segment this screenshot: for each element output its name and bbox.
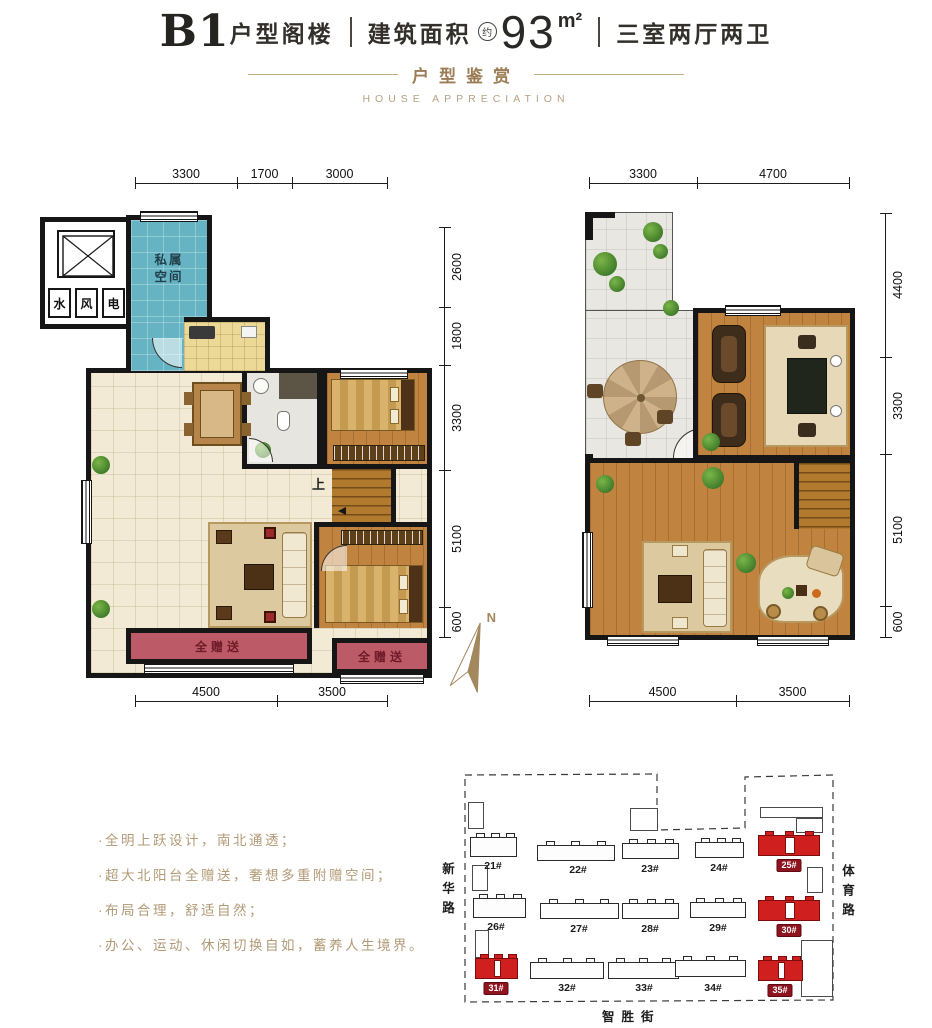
chair [830, 355, 842, 367]
aux-building [630, 808, 658, 831]
dim-value: 1800 [450, 322, 464, 350]
building-31 [475, 958, 518, 979]
balcony-gift-label: 全赠送 [195, 638, 243, 655]
plant [609, 276, 625, 292]
armchair [216, 606, 232, 620]
section-title-cn: 户型鉴赏 [412, 62, 520, 87]
sofa [282, 532, 307, 618]
building-32 [530, 962, 604, 979]
area-unit: m² [558, 10, 582, 33]
dim-value: 4700 [697, 167, 849, 181]
chair [672, 545, 688, 557]
road-bottom-label: 智胜街 [602, 1006, 661, 1025]
building-34-label: 34# [704, 982, 722, 994]
plant [782, 587, 794, 599]
side-table [264, 611, 276, 623]
plant [736, 553, 756, 573]
dim-ruler-right: 4400 3300 5100 600 [885, 213, 901, 637]
toilet [277, 411, 290, 431]
building-25-badge: 25# [776, 859, 801, 872]
private-space-label-line2: 空间 [131, 269, 207, 286]
dim-segment: 5100 [885, 454, 901, 606]
dim-ruler-top: 3300 1700 3000 [135, 166, 387, 184]
section-title: 户型鉴赏 HOUSE APPRECIATION [0, 62, 932, 105]
dim-segment: 3300 [135, 166, 237, 184]
dim-segment: 3500 [277, 684, 387, 702]
section-title-en: HOUSE APPRECIATION [0, 93, 932, 105]
selling-point: ·布局合理，舒适自然； [98, 900, 458, 935]
dim-value: 3500 [277, 685, 387, 699]
side-table [264, 527, 276, 539]
aux-building [801, 940, 833, 997]
page-title: B1 户型阁楼 建筑面积 约 93 m² 三室两厅两卫 [0, 6, 932, 57]
area-value: 93 [501, 9, 556, 55]
selling-point: ·超大北阳台全赠送，奢想多重附赠空间； [98, 865, 458, 900]
plant [653, 244, 668, 259]
building-21 [470, 837, 517, 857]
dim-segment: 1800 [444, 307, 460, 365]
balcony-gift-label: 全赠送 [358, 648, 406, 665]
bathroom-door-arc [249, 438, 273, 462]
wall-corner [585, 212, 615, 218]
title-divider [350, 17, 352, 47]
window [607, 635, 679, 646]
dim-ruler-right: 2600 1800 3300 5100 600 [444, 227, 460, 637]
window [81, 480, 92, 544]
compass: N [448, 610, 500, 698]
building-27-label: 27# [570, 923, 588, 935]
shaft-wind: 风 [75, 288, 98, 318]
patio-chair [587, 384, 603, 398]
plant [643, 222, 663, 242]
coffee-table [244, 564, 274, 590]
building-28-label: 28# [641, 923, 659, 935]
private-space-room: 私属 空间 [126, 215, 212, 317]
building-29-label: 29# [709, 922, 727, 934]
building-23-label: 23# [641, 863, 659, 875]
chair [184, 392, 193, 405]
dim-value: 1700 [237, 167, 292, 181]
window [144, 663, 294, 674]
kitchen [184, 317, 270, 371]
plant [702, 433, 720, 451]
dim-segment: 3000 [292, 166, 387, 184]
dim-segment: 4500 [135, 684, 277, 702]
dim-segment: 4700 [697, 166, 849, 184]
dim-value: 5100 [450, 525, 464, 553]
leisure-rug [758, 555, 844, 623]
dim-value: 3300 [135, 167, 237, 181]
chair [242, 392, 251, 405]
dim-segment: 3300 [589, 166, 697, 184]
bedroom-south [314, 522, 432, 628]
stairs-upper [794, 463, 850, 529]
chair [672, 617, 688, 629]
dim-segment: 3300 [444, 365, 460, 470]
table [787, 358, 827, 414]
wardrobe [333, 445, 425, 461]
plant [702, 467, 724, 489]
shaft-wind-label: 风 [80, 295, 92, 312]
window [340, 673, 424, 684]
dim-value: 4500 [589, 685, 736, 699]
dim-ruler-bottom: 4500 3500 [135, 684, 387, 702]
building-35 [758, 960, 803, 981]
dim-value: 600 [891, 611, 905, 632]
balcony-gift-right: 全赠送 [332, 638, 432, 674]
dim-value: 3300 [891, 392, 905, 420]
building-26 [473, 898, 526, 918]
pillow [399, 599, 408, 614]
umbrella-pole [637, 394, 645, 402]
armchair [216, 530, 232, 544]
shaft-power: 电 [102, 288, 125, 318]
dim-value: 4500 [135, 685, 277, 699]
side-table [796, 585, 807, 596]
plant [593, 252, 617, 276]
building-32-label: 32# [558, 982, 576, 994]
building-29 [690, 902, 746, 918]
wardrobe [341, 530, 423, 545]
gym-room [693, 308, 855, 460]
aux-building [760, 807, 823, 818]
selling-point: ·全明上跃设计，南北通透； [98, 830, 458, 865]
private-space-label-line1: 私属 [131, 252, 207, 269]
unit-name: 户型阁楼 [230, 15, 334, 49]
building-23 [622, 843, 679, 859]
pillow [390, 387, 399, 402]
floorplan-poster: B1 户型阁楼 建筑面积 约 93 m² 三室两厅两卫 户型鉴赏 HOUSE A… [0, 0, 932, 1028]
window [725, 305, 781, 316]
decor-line [534, 74, 684, 75]
private-space-label: 私属 空间 [131, 252, 207, 286]
chair [798, 423, 816, 437]
sofa [703, 549, 727, 627]
table-rug [764, 325, 848, 447]
building-22 [537, 845, 615, 861]
dim-value: 3300 [450, 404, 464, 432]
dim-segment: 5100 [444, 470, 460, 607]
family-room [585, 458, 855, 640]
layout-description: 三室两厅两卫 [616, 15, 772, 49]
dim-segment: 1700 [237, 166, 292, 184]
aux-building [468, 802, 484, 829]
decor-line [248, 74, 398, 75]
dim-ruler-bottom: 4500 3500 [589, 684, 849, 702]
plant [596, 475, 614, 493]
window [582, 532, 593, 608]
pillow [390, 409, 399, 424]
headboard [401, 380, 414, 430]
shower-tiles [279, 373, 317, 399]
dim-segment: 600 [885, 606, 901, 637]
aux-building [807, 867, 823, 893]
building-24 [695, 842, 744, 858]
dim-value: 4400 [891, 271, 905, 299]
pillow [399, 575, 408, 590]
upper-floor-plan: 3300 4700 4400 3300 5100 600 4500 3500 [585, 160, 932, 720]
bed [331, 379, 415, 431]
shaft-power-label: 电 [107, 295, 119, 312]
sink [241, 326, 257, 338]
dim-ruler-top: 3300 4700 [589, 166, 849, 184]
stairs [332, 469, 396, 527]
building-27 [540, 903, 619, 919]
unit-code: B1 [160, 6, 230, 57]
window [340, 368, 408, 379]
lower-floor-plan: 3300 1700 3000 2600 1800 3300 5100 600 4… [40, 160, 470, 720]
dim-segment: 3300 [885, 357, 901, 454]
building-25 [758, 835, 820, 856]
washbasin [253, 378, 269, 394]
bed [325, 565, 423, 623]
chair [184, 423, 193, 436]
plant [663, 300, 679, 316]
building-33 [608, 962, 679, 979]
dim-segment: 3500 [736, 684, 849, 702]
window [757, 635, 829, 646]
dim-value: 5100 [891, 516, 905, 544]
building-26-label: 26# [487, 921, 505, 933]
building-30-badge: 30# [776, 924, 801, 937]
building-24-label: 24# [710, 862, 728, 874]
treadmill [712, 325, 746, 383]
road-left-label: 新华路 [438, 862, 457, 921]
dining-table [192, 382, 242, 446]
elevator-x-icon [59, 232, 115, 278]
building-30 [758, 900, 820, 921]
building-31-badge: 31# [483, 982, 508, 995]
plant [92, 600, 110, 618]
wicker-chair [766, 604, 781, 619]
headboard [409, 566, 422, 622]
tv-sofa-rug [642, 541, 732, 633]
site-map: 21# 22# 23# 24# 25# 26# 27# 28# 29# 30# … [430, 762, 932, 1024]
plant [92, 456, 110, 474]
living-room-rug [208, 522, 312, 628]
selling-point: ·办公、运动、休闲切换自如，蓄养人生境界。 [98, 935, 458, 970]
building-28 [622, 903, 679, 919]
dim-value: 3500 [736, 685, 849, 699]
stairs-arrow-icon [338, 507, 346, 515]
dim-value: 3300 [589, 167, 697, 181]
building-34 [675, 960, 746, 977]
ottoman [812, 589, 821, 598]
approx-circle-icon: 约 [478, 22, 497, 41]
shaft-water-label: 水 [53, 295, 65, 312]
dim-segment: 4500 [589, 684, 736, 702]
building-33-label: 33# [635, 982, 653, 994]
bedroom-north [322, 373, 432, 469]
balcony-gift-left: 全赠送 [126, 628, 312, 664]
chair [830, 405, 842, 417]
elevator-block: 水 风 电 [40, 217, 132, 329]
building-21-label: 21# [484, 860, 502, 872]
window [140, 211, 198, 222]
elevator-shaft [57, 230, 115, 278]
title-divider [598, 17, 600, 47]
lounge-sofa [805, 544, 845, 577]
stairs-up-label: 上 [312, 474, 325, 493]
selling-points: ·全明上跃设计，南北通透； ·超大北阳台全赠送，奢想多重附赠空间； ·布局合理，… [98, 830, 458, 970]
wicker-chair [813, 606, 828, 621]
dim-segment: 4400 [885, 213, 901, 357]
stove [189, 326, 215, 339]
building-22-label: 22# [569, 864, 587, 876]
coffee-table [658, 575, 692, 603]
area-label: 建筑面积 [368, 15, 472, 49]
dim-value: 3000 [292, 167, 387, 181]
chair [798, 335, 816, 349]
dim-value: 2600 [450, 253, 464, 281]
bathroom [242, 373, 322, 469]
bedroom-door-arc [321, 545, 347, 571]
building-35-badge: 35# [767, 984, 792, 997]
dim-segment: 2600 [444, 227, 460, 307]
table-top [200, 390, 234, 438]
shaft-water: 水 [48, 288, 71, 318]
road-right-label: 体育路 [838, 864, 857, 923]
patio-chair [625, 432, 641, 446]
chair [242, 423, 251, 436]
patio-chair [657, 410, 673, 424]
compass-north-label: N [487, 610, 496, 625]
